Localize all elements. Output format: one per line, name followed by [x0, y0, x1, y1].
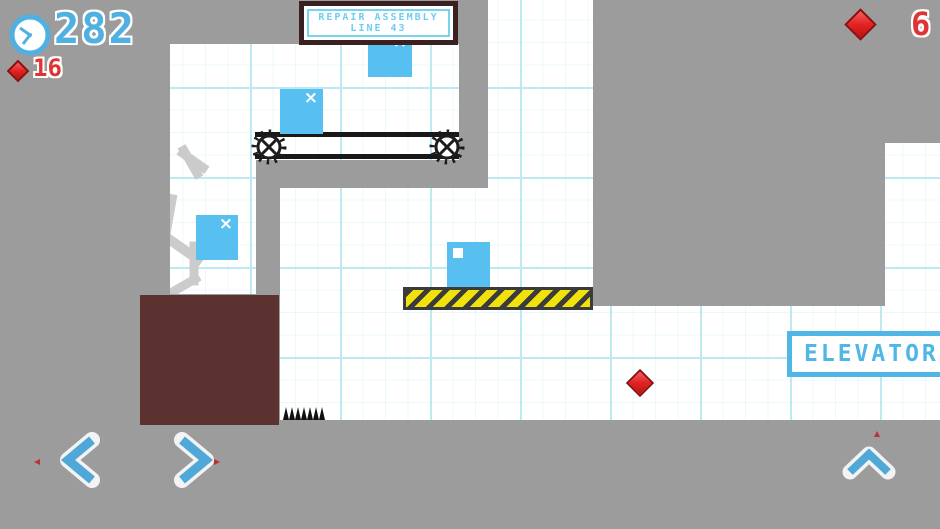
removable-crate[interactable]: × — [196, 215, 238, 260]
spike — [319, 407, 325, 420]
red-marker — [214, 459, 220, 465]
jump-button[interactable] — [838, 436, 900, 491]
repair-sign-line1: REPAIR ASSEMBLY — [311, 12, 446, 23]
repair-sign-line2: LINE 43 — [311, 23, 446, 34]
gear-icon — [251, 129, 287, 165]
level-area-right-column — [885, 143, 940, 420]
gem-icon — [844, 8, 877, 41]
removable-crate[interactable]: × — [280, 89, 323, 134]
red-marker — [874, 431, 880, 437]
sketch-doodle — [170, 193, 177, 234]
hazard-stripes — [406, 290, 590, 307]
elevator-sign-label: ELEVATOR — [804, 341, 939, 367]
heavy-crate — [140, 295, 279, 425]
chevron-left-icon — [48, 432, 112, 488]
x-icon: × — [304, 90, 318, 107]
clock-icon — [8, 13, 52, 57]
player-character — [447, 242, 490, 287]
game-screen: × × × REPAIR ASSEMBLY LINE 43 ELEVATOR — [0, 0, 940, 529]
player-eye — [453, 248, 463, 258]
elevator-sign: ELEVATOR — [787, 331, 940, 377]
x-icon: × — [219, 216, 233, 233]
spikes — [283, 407, 325, 420]
move-left-button[interactable] — [48, 432, 112, 491]
gem-count-right: 6 — [911, 8, 930, 40]
repair-sign-panel: REPAIR ASSEMBLY LINE 43 — [307, 9, 450, 37]
gear-icon — [429, 129, 465, 165]
chevron-up-icon — [838, 436, 900, 488]
hazard-platform — [403, 287, 593, 310]
gem-count: 16 — [33, 56, 62, 80]
repair-sign: REPAIR ASSEMBLY LINE 43 — [299, 1, 458, 45]
gem-icon — [7, 60, 30, 83]
red-marker — [34, 459, 40, 465]
timer-value: 282 — [54, 8, 136, 50]
